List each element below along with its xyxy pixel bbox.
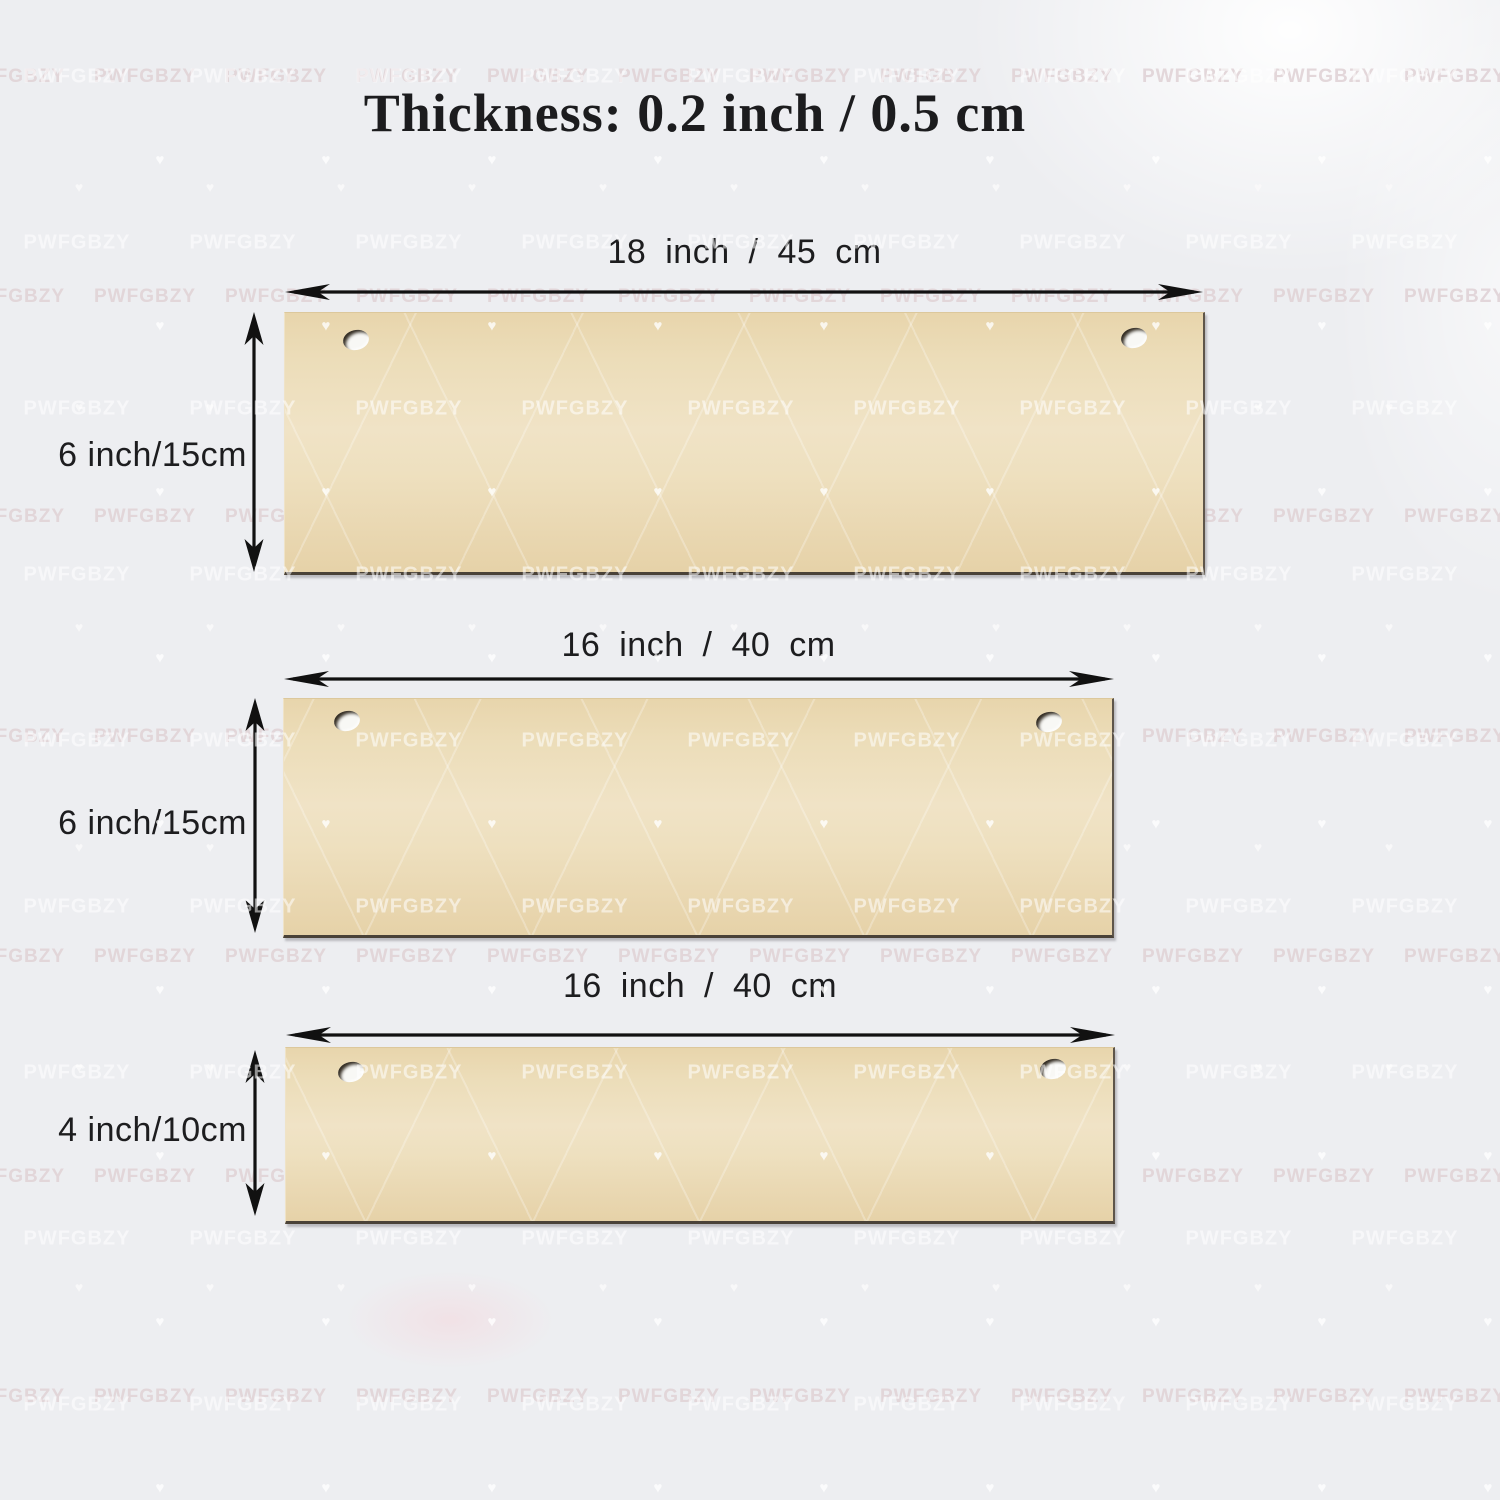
watermark-text: PWFGBZY xyxy=(1273,946,1375,968)
width-arrow-1 xyxy=(284,281,1204,303)
watermark-text: PWFGBZY xyxy=(24,730,131,753)
watermark-text: PWFGBZY xyxy=(1352,1062,1459,1085)
watermark-text: PWFGBZY xyxy=(0,946,65,968)
watermark-heart-icon: ♥ xyxy=(156,484,165,501)
watermark-heart-icon: ♥ xyxy=(156,982,165,999)
watermark-heart-icon: ♥ xyxy=(1318,982,1327,999)
width-dimension-label-3: 16 inch / 40 cm xyxy=(285,964,1115,1008)
watermark-heart-icon: ♥ xyxy=(1254,399,1262,415)
watermark-heart-icon: ♥ xyxy=(654,1314,663,1331)
wood-plank-3 xyxy=(285,1047,1115,1224)
watermark-heart-icon: ♥ xyxy=(1318,1148,1327,1165)
watermark-text: PWFGBZY xyxy=(1404,66,1500,88)
width-arrow-3 xyxy=(285,1024,1116,1046)
wood-plank-2 xyxy=(283,698,1114,938)
watermark-heart-icon: ♥ xyxy=(1254,1279,1262,1295)
watermark-heart-icon: ♥ xyxy=(1484,982,1493,999)
watermark-text: PWFGBZY xyxy=(0,1386,65,1408)
watermark-heart-icon: ♥ xyxy=(599,179,607,195)
watermark-text: PWFGBZY xyxy=(522,1228,629,1251)
width-arrow-2 xyxy=(283,668,1115,690)
height-dimension-label-2: 6 inch/15cm xyxy=(20,801,247,845)
watermark-text: PWFGBZY xyxy=(1404,946,1500,968)
watermark-heart-icon: ♥ xyxy=(654,1480,663,1497)
watermark-heart-icon: ♥ xyxy=(1318,650,1327,667)
watermark-heart-icon: ♥ xyxy=(1152,1314,1161,1331)
watermark-heart-icon: ♥ xyxy=(322,1480,331,1497)
watermark-text: PWFGBZY xyxy=(1273,506,1375,528)
watermark-text: PWFGBZY xyxy=(1352,730,1459,753)
watermark-heart-icon: ♥ xyxy=(206,399,214,415)
hanging-hole-icon xyxy=(336,1060,366,1085)
watermark-text: PWFGBZY xyxy=(0,286,65,308)
watermark-heart-icon: ♥ xyxy=(992,1279,1000,1295)
watermark-heart-icon: ♥ xyxy=(1484,816,1493,833)
watermark-text: PWFGBZY xyxy=(1273,286,1375,308)
watermark-heart-icon: ♥ xyxy=(1254,619,1262,635)
watermark-heart-icon: ♥ xyxy=(820,1314,829,1331)
height-arrow-2 xyxy=(243,697,267,934)
watermark-text: PWFGBZY xyxy=(854,1228,961,1251)
watermark-text: PWFGBZY xyxy=(749,1386,851,1408)
watermark-heart-icon: ♥ xyxy=(1385,839,1393,855)
watermark-text: PWFGBZY xyxy=(356,1386,458,1408)
watermark-text: PWFGBZY xyxy=(190,1394,297,1417)
height-arrow-1 xyxy=(242,311,266,573)
watermark-text: PWFGBZY xyxy=(94,946,196,968)
watermark-heart-icon: ♥ xyxy=(1254,839,1262,855)
watermark-heart-icon: ♥ xyxy=(468,1279,476,1295)
watermark-heart-icon: ♥ xyxy=(156,650,165,667)
hanging-hole-icon xyxy=(1038,1057,1068,1082)
watermark-heart-icon: ♥ xyxy=(322,1314,331,1331)
watermark-text: PWFGBZY xyxy=(1352,398,1459,421)
width-dimension-label-1: 18 inch / 45 cm xyxy=(284,230,1205,274)
watermark-heart-icon: ♥ xyxy=(1385,1279,1393,1295)
watermark-text: PWFGBZY xyxy=(190,1228,297,1251)
watermark-heart-icon: ♥ xyxy=(1152,1148,1161,1165)
watermark-text: PWFGBZY xyxy=(24,232,131,255)
watermark-heart-icon: ♥ xyxy=(206,179,214,195)
watermark-text: PWFGBZY xyxy=(225,1386,327,1408)
watermark-text: PWFGBZY xyxy=(94,726,196,748)
watermark-heart-icon: ♥ xyxy=(1484,152,1493,169)
watermark-heart-icon: ♥ xyxy=(820,152,829,169)
watermark-heart-icon: ♥ xyxy=(322,152,331,169)
watermark-text: PWFGBZY xyxy=(0,726,65,748)
watermark-heart-icon: ♥ xyxy=(1152,1480,1161,1497)
product-dimension-image: PWFGBZYPWFGBZYPWFGBZYPWFGBZYPWFGBZYPWFGB… xyxy=(0,0,1500,1500)
watermark-heart-icon: ♥ xyxy=(986,1480,995,1497)
watermark-text: PWFGBZY xyxy=(1352,564,1459,587)
watermark-text: PWFGBZY xyxy=(94,286,196,308)
watermark-text: PWFGBZY xyxy=(1352,896,1459,919)
hanging-hole-icon xyxy=(341,328,371,353)
watermark-text: PWFGBZY xyxy=(1011,1386,1113,1408)
wood-plank-1 xyxy=(284,312,1205,575)
watermark-text: PWFGBZY xyxy=(1352,1228,1459,1251)
watermark-heart-icon: ♥ xyxy=(337,1279,345,1295)
watermark-heart-icon: ♥ xyxy=(986,1314,995,1331)
watermark-heart-icon: ♥ xyxy=(1318,1480,1327,1497)
watermark-heart-icon: ♥ xyxy=(1318,318,1327,335)
watermark-heart-icon: ♥ xyxy=(156,152,165,169)
watermark-text: PWFGBZY xyxy=(688,1228,795,1251)
watermark-text: PWFGBZY xyxy=(1186,1394,1293,1417)
watermark-heart-icon: ♥ xyxy=(1123,839,1131,855)
watermark-heart-icon: ♥ xyxy=(75,1279,83,1295)
watermark-heart-icon: ♥ xyxy=(1318,1314,1327,1331)
watermark-heart-icon: ♥ xyxy=(1385,399,1393,415)
watermark-heart-icon: ♥ xyxy=(1254,1059,1262,1075)
watermark-heart-icon: ♥ xyxy=(730,1279,738,1295)
watermark-heart-icon: ♥ xyxy=(1484,318,1493,335)
height-dimension-label-1: 6 inch/15cm xyxy=(20,433,247,477)
watermark-text: PWFGBZY xyxy=(24,564,131,587)
height-arrow-3 xyxy=(243,1049,267,1217)
watermark-text: PWFGBZY xyxy=(487,1386,589,1408)
watermark-heart-icon: ♥ xyxy=(75,399,83,415)
watermark-heart-icon: ♥ xyxy=(206,619,214,635)
watermark-text: PWFGBZY xyxy=(94,1386,196,1408)
watermark-text: PWFGBZY xyxy=(1404,506,1500,528)
watermark-heart-icon: ♥ xyxy=(75,619,83,635)
watermark-heart-icon: ♥ xyxy=(337,179,345,195)
watermark-text: PWFGBZY xyxy=(1186,1228,1293,1251)
watermark-heart-icon: ♥ xyxy=(1152,152,1161,169)
watermark-text: PWFGBZY xyxy=(1142,1386,1244,1408)
watermark-text: PWFGBZY xyxy=(880,1386,982,1408)
watermark-text: PWFGBZY xyxy=(1404,726,1500,748)
watermark-heart-icon: ♥ xyxy=(1484,484,1493,501)
watermark-heart-icon: ♥ xyxy=(1254,179,1262,195)
watermark-heart-icon: ♥ xyxy=(1484,1480,1493,1497)
watermark-heart-icon: ♥ xyxy=(156,318,165,335)
watermark-heart-icon: ♥ xyxy=(1385,1059,1393,1075)
watermark-heart-icon: ♥ xyxy=(1123,1279,1131,1295)
hanging-hole-icon xyxy=(332,709,362,734)
watermark-text: PWFGBZY xyxy=(94,506,196,528)
watermark-text: PWFGBZY xyxy=(618,1386,720,1408)
watermark-text: PWFGBZY xyxy=(0,506,65,528)
watermark-heart-icon: ♥ xyxy=(820,1480,829,1497)
watermark-text: PWFGBZY xyxy=(24,398,131,421)
watermark-heart-icon: ♥ xyxy=(468,179,476,195)
watermark-heart-icon: ♥ xyxy=(1318,816,1327,833)
watermark-heart-icon: ♥ xyxy=(156,1314,165,1331)
watermark-text: PWFGBZY xyxy=(24,1228,131,1251)
watermark-heart-icon: ♥ xyxy=(1123,179,1131,195)
watermark-heart-icon: ♥ xyxy=(986,152,995,169)
watermark-heart-icon: ♥ xyxy=(488,1480,497,1497)
watermark-heart-icon: ♥ xyxy=(861,179,869,195)
watermark-heart-icon: ♥ xyxy=(654,152,663,169)
watermark-heart-icon: ♥ xyxy=(1318,152,1327,169)
hanging-hole-icon xyxy=(1119,326,1149,351)
watermark-heart-icon: ♥ xyxy=(1484,1148,1493,1165)
thickness-title: Thickness: 0.2 inch / 0.5 cm xyxy=(0,82,1390,144)
watermark-text: PWFGBZY xyxy=(1186,896,1293,919)
watermark-heart-icon: ♥ xyxy=(1318,484,1327,501)
watermark-text: PWFGBZY xyxy=(356,1394,463,1417)
height-dimension-label-3: 4 inch/10cm xyxy=(20,1108,247,1152)
watermark-heart-icon: ♥ xyxy=(1123,619,1131,635)
watermark-text: PWFGBZY xyxy=(854,1394,961,1417)
watermark-text: PWFGBZY xyxy=(1404,1386,1500,1408)
watermark-text: PWFGBZY xyxy=(356,1228,463,1251)
watermark-text: PWFGBZY xyxy=(1404,1166,1500,1188)
watermark-text: PWFGBZY xyxy=(1186,730,1293,753)
watermark-heart-icon: ♥ xyxy=(599,1279,607,1295)
watermark-heart-icon: ♥ xyxy=(206,1279,214,1295)
watermark-text: PWFGBZY xyxy=(24,1394,131,1417)
watermark-heart-icon: ♥ xyxy=(75,179,83,195)
watermark-text: PWFGBZY xyxy=(1142,726,1244,748)
watermark-text: PWFGBZY xyxy=(1142,946,1244,968)
watermark-text: PWFGBZY xyxy=(1352,1394,1459,1417)
watermark-heart-icon: ♥ xyxy=(488,152,497,169)
watermark-text: PWFGBZY xyxy=(1020,1228,1127,1251)
watermark-heart-icon: ♥ xyxy=(1484,1314,1493,1331)
watermark-text: PWFGBZY xyxy=(24,1062,131,1085)
watermark-text: PWFGBZY xyxy=(1273,1166,1375,1188)
watermark-text: PWFGBZY xyxy=(1273,726,1375,748)
watermark-heart-icon: ♥ xyxy=(1123,1059,1131,1075)
width-dimension-label-2: 16 inch / 40 cm xyxy=(283,623,1114,667)
watermark-heart-icon: ♥ xyxy=(488,1314,497,1331)
watermark-heart-icon: ♥ xyxy=(1385,619,1393,635)
watermark-text: PWFGBZY xyxy=(1404,286,1500,308)
hanging-hole-icon xyxy=(1034,710,1064,735)
watermark-heart-icon: ♥ xyxy=(1152,650,1161,667)
watermark-heart-icon: ♥ xyxy=(1152,982,1161,999)
watermark-heart-icon: ♥ xyxy=(75,1059,83,1075)
watermark-text: PWFGBZY xyxy=(94,1166,196,1188)
watermark-heart-icon: ♥ xyxy=(992,179,1000,195)
watermark-text: PWFGBZY xyxy=(190,232,297,255)
watermark-text: PWFGBZY xyxy=(688,1394,795,1417)
watermark-text: PWFGBZY xyxy=(0,1166,65,1188)
watermark-text: PWFGBZY xyxy=(1352,232,1459,255)
watermark-heart-icon: ♥ xyxy=(861,1279,869,1295)
watermark-heart-icon: ♥ xyxy=(730,179,738,195)
watermark-heart-icon: ♥ xyxy=(206,1059,214,1075)
watermark-text: PWFGBZY xyxy=(522,1394,629,1417)
watermark-heart-icon: ♥ xyxy=(156,1480,165,1497)
watermark-text: PWFGBZY xyxy=(1273,1386,1375,1408)
watermark-text: PWFGBZY xyxy=(24,896,131,919)
watermark-heart-icon: ♥ xyxy=(1484,650,1493,667)
watermark-text: PWFGBZY xyxy=(1142,1166,1244,1188)
watermark-text: PWFGBZY xyxy=(1020,1394,1127,1417)
watermark-heart-icon: ♥ xyxy=(1152,816,1161,833)
watermark-heart-icon: ♥ xyxy=(1385,179,1393,195)
watermark-text: PWFGBZY xyxy=(1186,1062,1293,1085)
